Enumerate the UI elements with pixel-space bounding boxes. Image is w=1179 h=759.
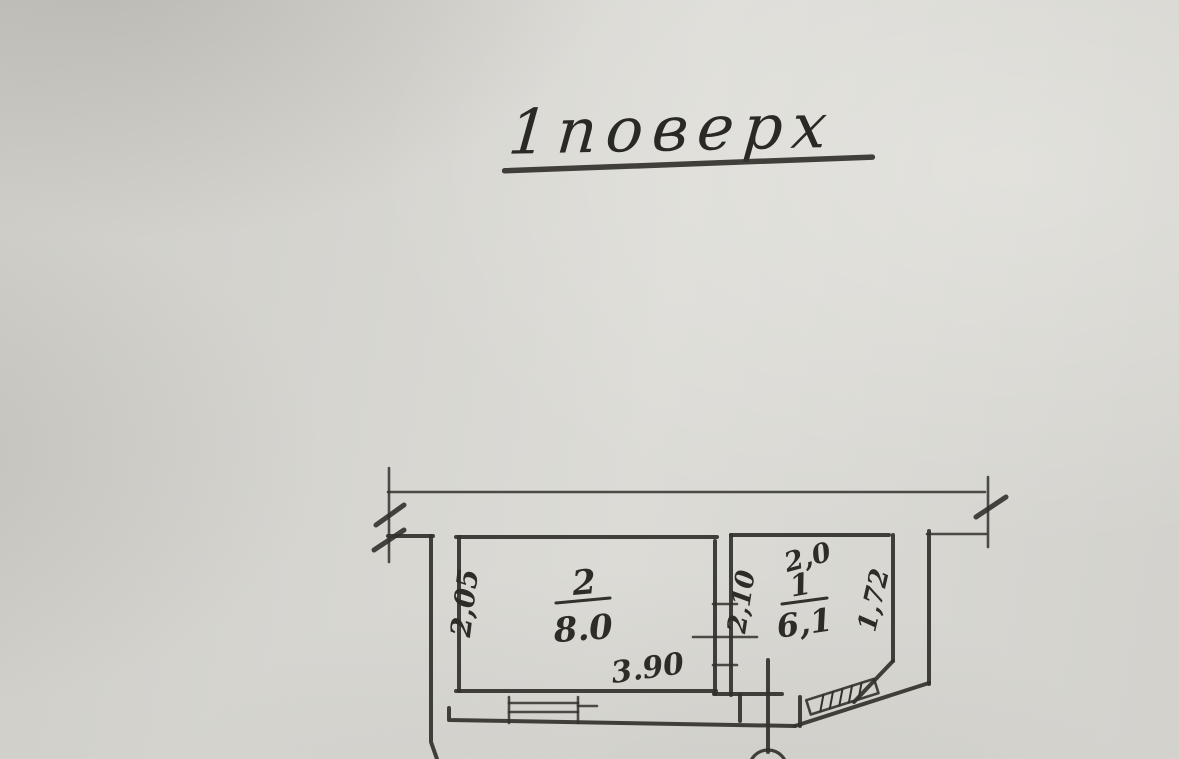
room2-number-label: 2 <box>570 562 598 604</box>
room2-area-label: 8.0 <box>551 607 614 651</box>
room1-labels: 2,0 1 6,1 2,10 1,72 <box>722 537 896 646</box>
room2-dim-bottom-label: 3.90 <box>609 646 686 691</box>
right-dimension-tick <box>976 497 1006 517</box>
outer-left-wall <box>431 536 437 759</box>
sheet-title: 1поверх <box>503 88 872 171</box>
room1-dim-right-label: 1,72 <box>852 566 895 634</box>
page-title: 1поверх <box>506 89 839 169</box>
riser-circle <box>749 750 787 759</box>
room2-dim-left-label: 2,05 <box>444 567 485 640</box>
room1-dim-left-label: 2,10 <box>722 568 762 636</box>
dimension-lines <box>374 468 1006 562</box>
floor-plan-drawing: 1поверх <box>0 0 1179 759</box>
outer-walls <box>388 531 929 759</box>
riser-marker <box>749 660 787 759</box>
room1-area-label: 6,1 <box>774 600 834 645</box>
room2-labels: 2 8.0 2,05 3.90 <box>444 562 686 691</box>
outer-diagonal-wall <box>795 683 929 726</box>
outer-bottom-wall <box>449 708 795 726</box>
scanned-floor-plan-sheet: 1поверх <box>0 0 1179 759</box>
window-symbol <box>509 697 597 723</box>
